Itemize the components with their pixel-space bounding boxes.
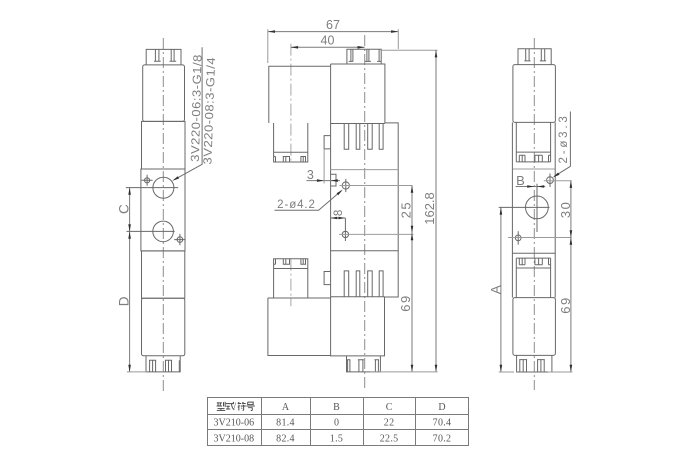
svg-text:82.4: 82.4 (276, 433, 295, 444)
svg-text:69: 69 (398, 294, 413, 311)
svg-text:22: 22 (384, 418, 395, 429)
svg-text:67: 67 (326, 18, 340, 32)
svg-text:2-ø4.2: 2-ø4.2 (277, 199, 316, 211)
svg-text:3V220-08:3-G1/4: 3V220-08:3-G1/4 (201, 57, 218, 165)
svg-text:70.2: 70.2 (433, 433, 452, 444)
svg-text:22.5: 22.5 (380, 433, 399, 444)
svg-text:69: 69 (558, 296, 573, 313)
svg-text:8: 8 (333, 210, 345, 216)
svg-text:2-ø3.3: 2-ø3.3 (558, 113, 570, 163)
svg-text:A: A (488, 285, 503, 294)
svg-text:B: B (333, 402, 340, 413)
svg-text:40: 40 (321, 34, 335, 48)
svg-text:1.5: 1.5 (330, 433, 343, 444)
svg-text:D: D (116, 296, 131, 306)
svg-text:D: D (438, 402, 445, 413)
svg-text:70.4: 70.4 (433, 418, 452, 429)
svg-text:A: A (282, 402, 290, 413)
svg-text:3V210-08: 3V210-08 (214, 433, 255, 444)
svg-text:3: 3 (307, 168, 314, 182)
svg-text:162.8: 162.8 (422, 192, 437, 225)
svg-text:0: 0 (334, 418, 339, 429)
svg-text:/: / (233, 402, 236, 413)
svg-text:3V210-06: 3V210-06 (214, 418, 255, 429)
svg-text:81.4: 81.4 (276, 418, 295, 429)
svg-text:30: 30 (558, 201, 573, 218)
svg-text:C: C (386, 402, 393, 413)
svg-text:25: 25 (398, 201, 413, 218)
svg-text:B: B (516, 173, 525, 188)
svg-text:C: C (116, 204, 131, 214)
